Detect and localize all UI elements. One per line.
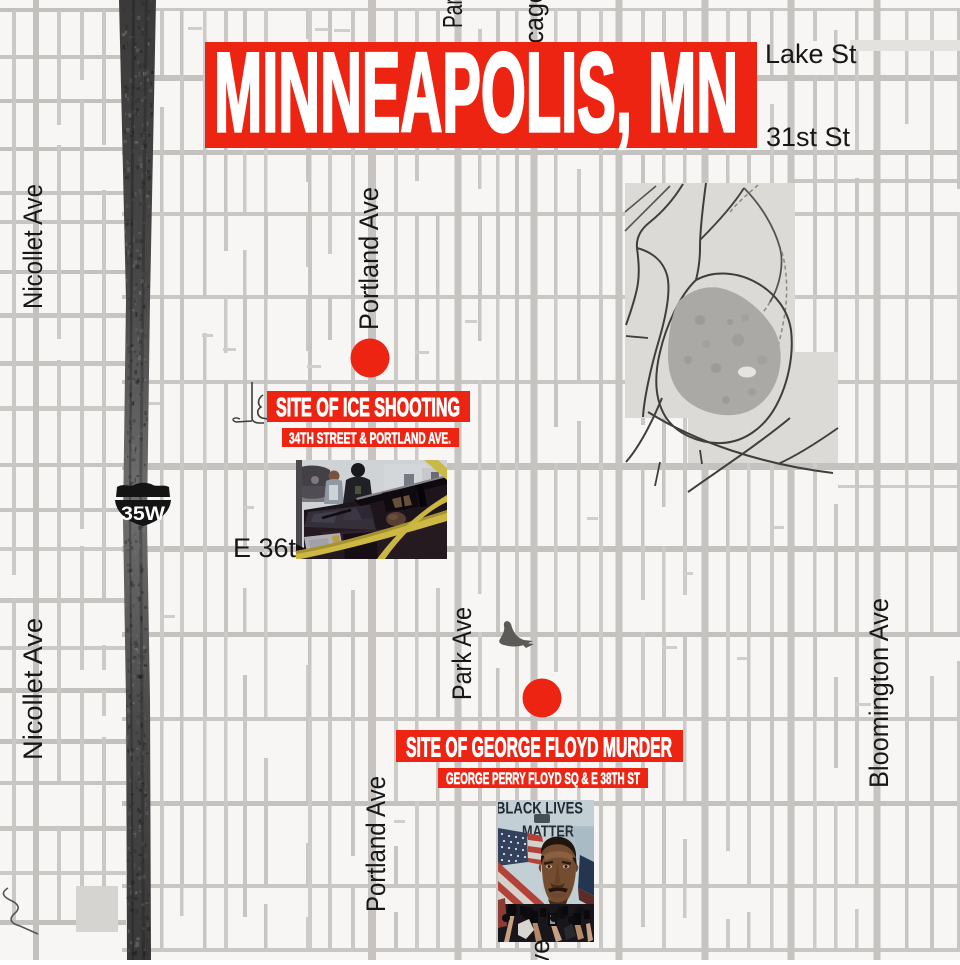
svg-text:31st St: 31st St [766,122,851,152]
svg-text:SITE OF GEORGE FLOYD MURDER: SITE OF GEORGE FLOYD MURDER [406,732,672,763]
svg-text:Nicollet Ave: Nicollet Ave [18,184,48,309]
svg-text:Nicollet Ave: Nicollet Ave [18,618,48,760]
svg-text:MINNEAPOLIS, MN: MINNEAPOLIS, MN [214,30,738,155]
svg-text:Portland Ave: Portland Ave [361,776,391,912]
svg-text:SITE OF ICE SHOOTING: SITE OF ICE SHOOTING [276,392,460,422]
svg-text:Chicago Ave: Chicago Ave [525,940,555,960]
svg-text:Park Ave: Park Ave [437,0,468,28]
svg-text:Lake St: Lake St [765,39,857,69]
svg-text:Portland Ave: Portland Ave [354,187,384,330]
svg-text:GEORGE PERRY FLOYD SQ & E 38TH: GEORGE PERRY FLOYD SQ & E 38TH ST [446,770,640,788]
svg-text:34TH STREET & PORTLAND AVE.: 34TH STREET & PORTLAND AVE. [289,431,451,448]
svg-text:Park Ave: Park Ave [447,607,477,700]
svg-text:Bloomington Ave: Bloomington Ave [864,598,894,788]
svg-text:35W: 35W [121,504,165,525]
